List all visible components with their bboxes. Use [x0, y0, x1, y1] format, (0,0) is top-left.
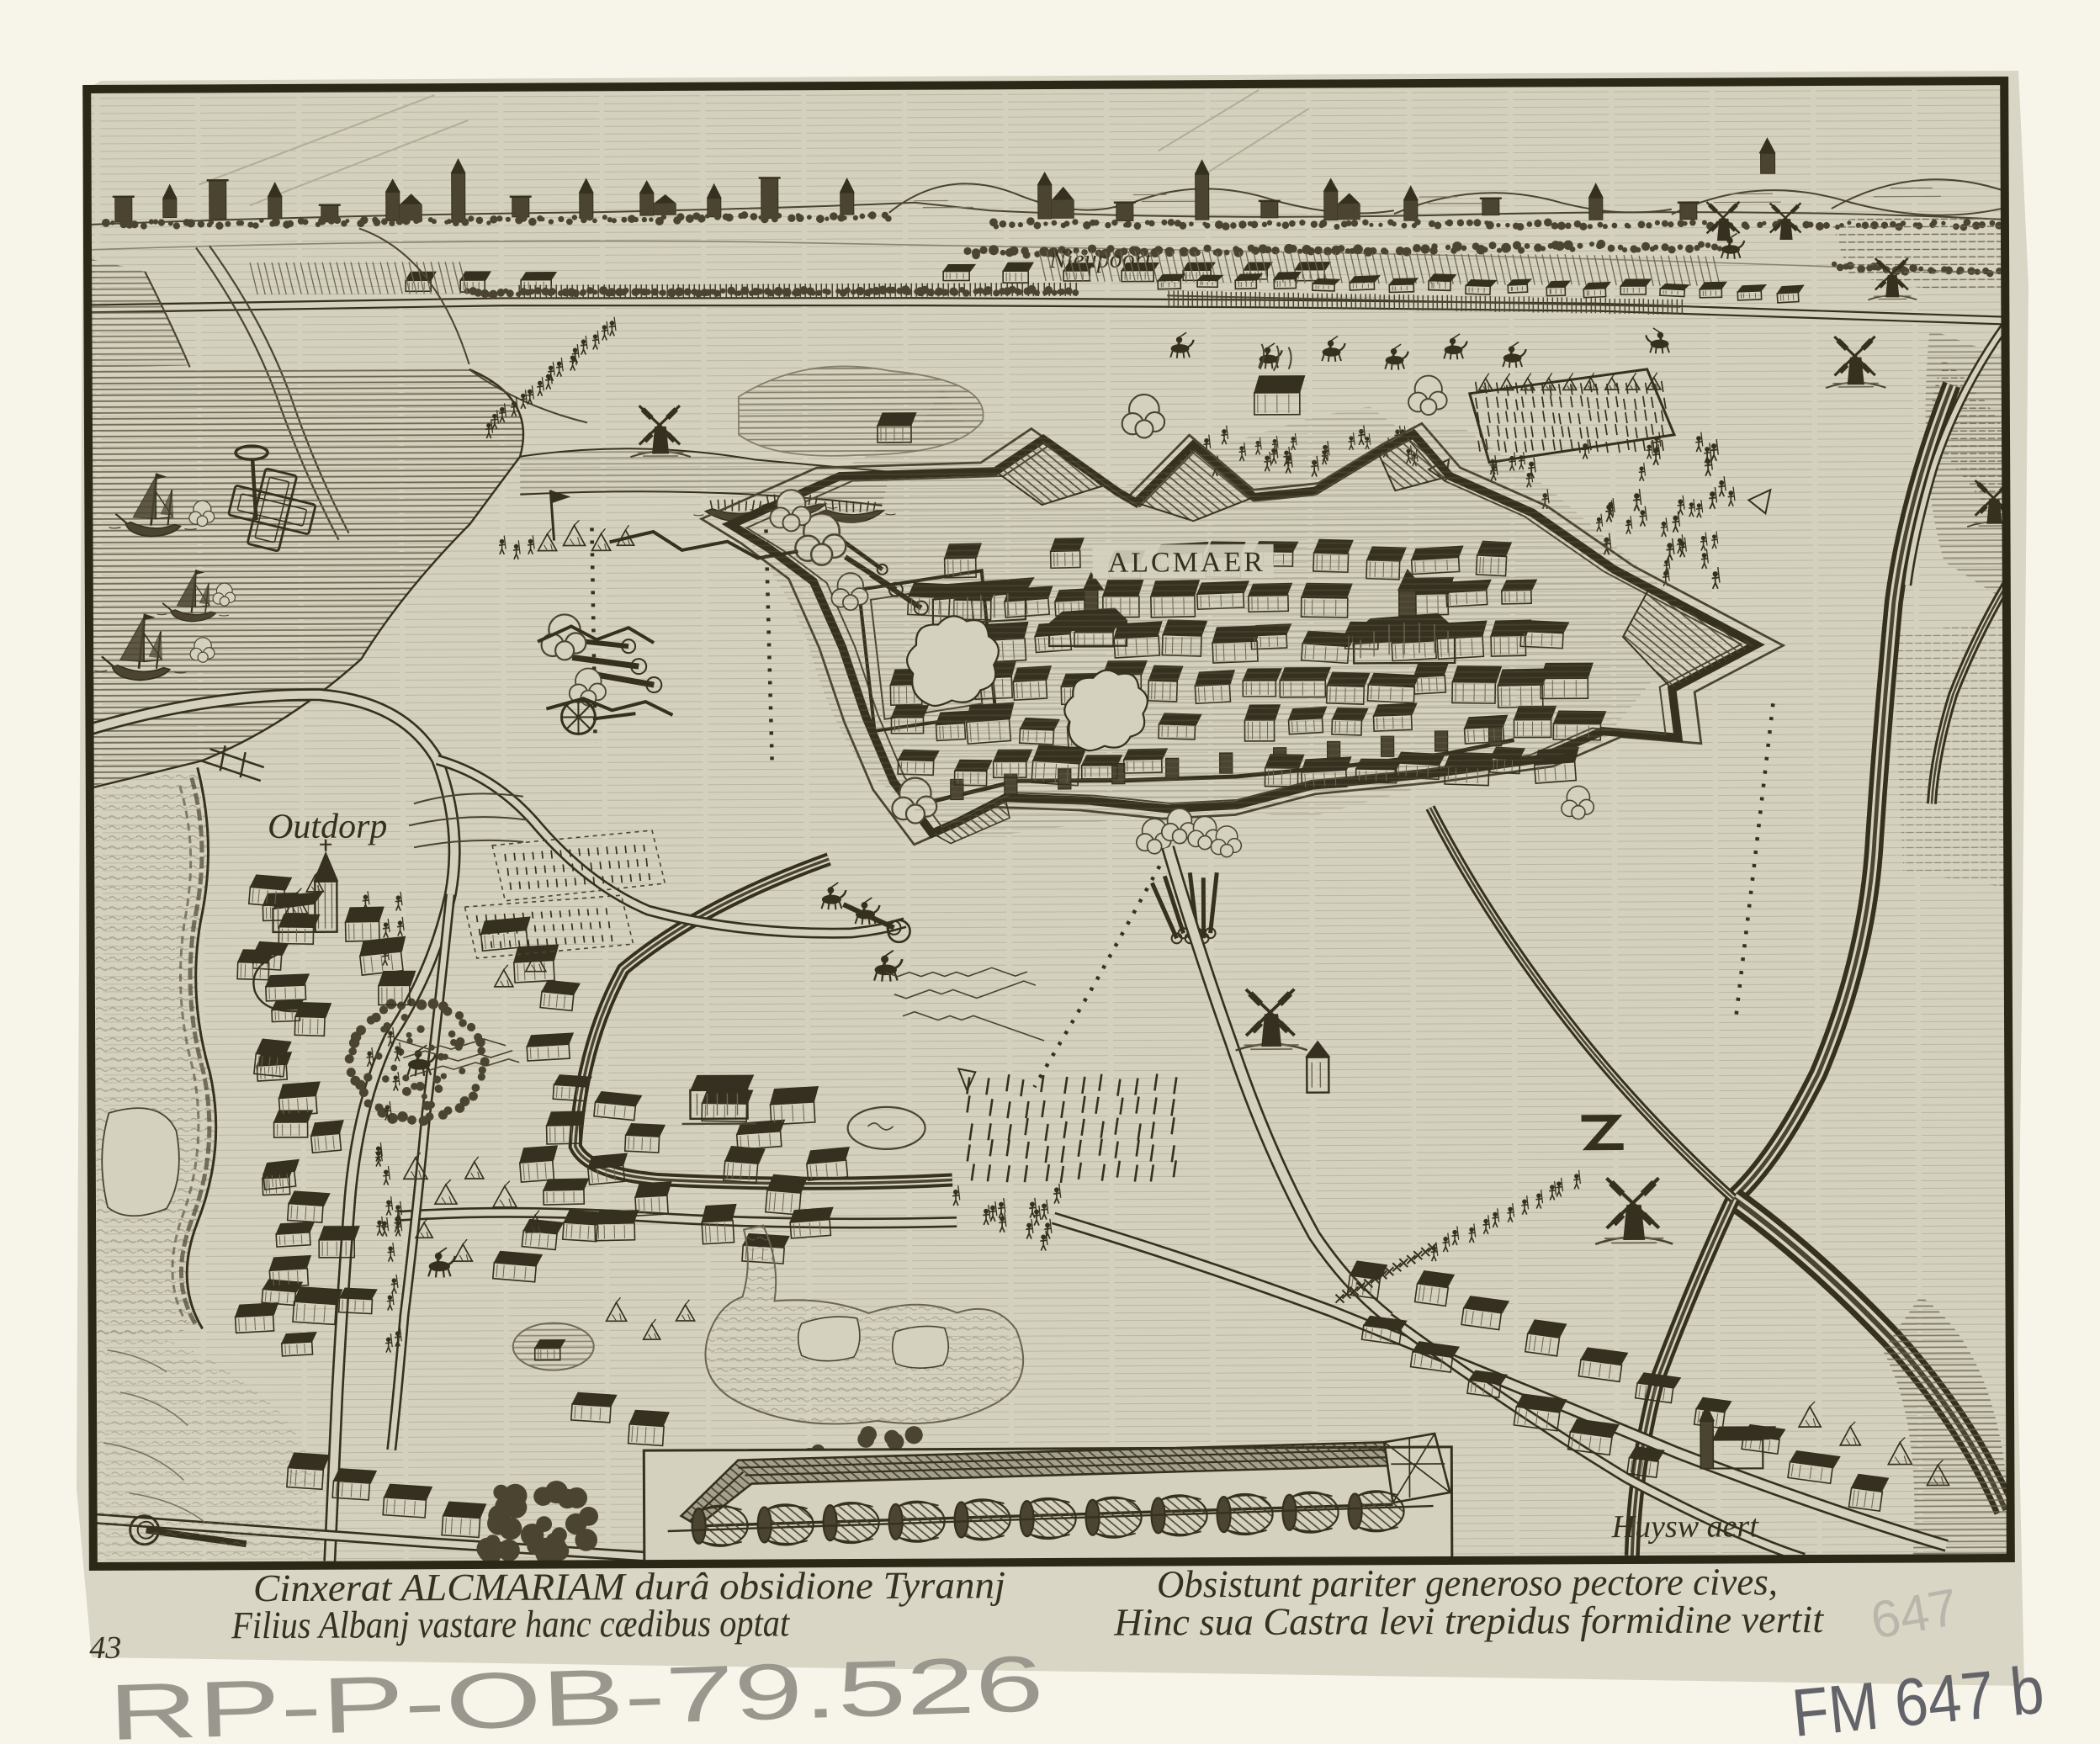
- svg-text:ALCMAER: ALCMAER: [1108, 547, 1265, 579]
- svg-text:Outdorp: Outdorp: [268, 807, 388, 846]
- svg-text:Huysw aert: Huysw aert: [1611, 1508, 1760, 1545]
- svg-text:Filius Albanj vastare hanc cæd: Filius Albanj vastare hanc cædibus optat: [231, 1601, 790, 1646]
- svg-text:43: 43: [89, 1630, 121, 1666]
- svg-text:Hinc sua Castra levi trepidus: Hinc sua Castra levi trepidus formidine …: [1113, 1598, 1824, 1644]
